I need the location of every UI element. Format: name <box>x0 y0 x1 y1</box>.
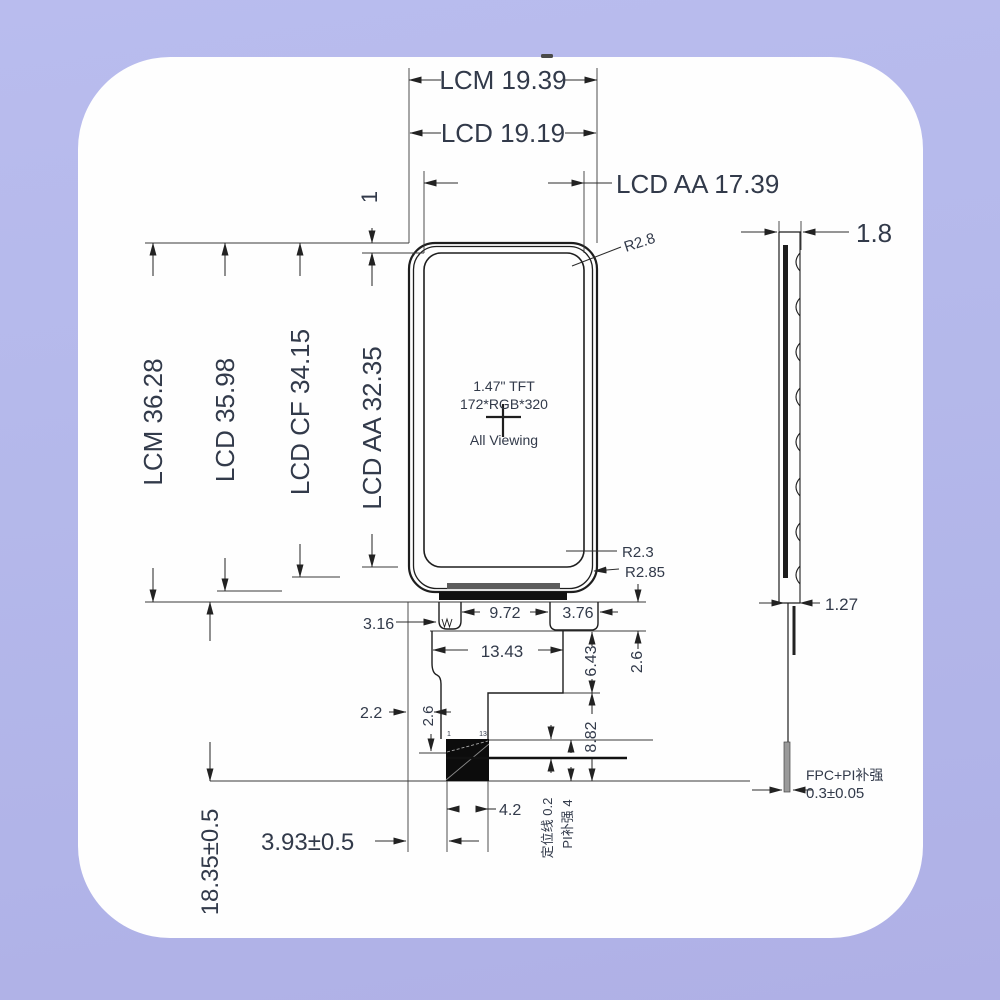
panel-resolution-label: 172*RGB*320 <box>460 396 548 412</box>
dim-lcm-width: LCM 19.39 <box>439 65 566 95</box>
dim-neck-width: 13.43 <box>481 642 524 661</box>
dim-pi-stiffener: PI补强 4 <box>560 799 575 848</box>
dim-right-tab: 3.76 <box>562 605 593 622</box>
bonding-bar-lower <box>439 592 567 600</box>
radius-bottom-inner-label: R2.3 <box>622 544 654 561</box>
dim-fpc-thickness: 0.3±0.05 <box>806 785 864 802</box>
dim-tab-gap: 9.72 <box>489 605 520 622</box>
dim-tab-height: 2.6 <box>629 651 646 673</box>
panel-size-label: 1.47" TFT <box>473 378 535 394</box>
tab-index-mark <box>442 619 452 627</box>
dim-panel-thickness: 1.27 <box>825 595 858 614</box>
dim-lcm-height: LCM 36.28 <box>138 358 168 485</box>
side-view: 1.8 1.27 FPC+PI补强 0.3±0.05 <box>741 218 892 802</box>
front-view-outline <box>409 243 597 600</box>
pi-stiffener-bar <box>784 742 790 792</box>
stray-mark <box>541 54 553 58</box>
dim-right-step: 6.43 <box>583 645 600 676</box>
radius-bottom-outer-label: R2.85 <box>625 564 665 581</box>
side-serration <box>796 253 800 584</box>
panel-labels: 1.47" TFT 172*RGB*320 All Viewing <box>460 378 548 448</box>
lcm-mechanical-drawing: 1.47" TFT 172*RGB*320 All Viewing R2.8 R… <box>0 0 1000 1000</box>
radius-top-label: R2.8 <box>622 230 657 256</box>
dim-total-thickness: 1.8 <box>856 218 892 248</box>
dim-tail-length: 18.35±0.5 <box>197 809 224 916</box>
dim-tail-offset: 3.93±0.5 <box>261 829 354 856</box>
dim-top-gap: 1 <box>357 191 382 203</box>
corner-radius-callouts: R2.8 R2.3 R2.85 <box>566 230 665 581</box>
front-dims-top: LCM 19.39 LCD 19.19 LCD AA 17.39 <box>409 65 779 199</box>
dim-left-step: 2.6 <box>420 706 437 727</box>
glass-stack <box>783 245 788 578</box>
front-dims-left: LCM 36.28 LCD 35.98 LCD CF 34.15 LCD AA … <box>138 191 387 602</box>
dim-connector-width: 4.2 <box>499 802 521 819</box>
pin-13-label: 13 <box>479 731 487 738</box>
dim-tail-height: 8.82 <box>583 721 600 752</box>
dim-lcd-aa-width: LCD AA 17.39 <box>616 169 779 199</box>
pin-1-label: 1 <box>447 731 451 738</box>
dim-lcd-height: LCD 35.98 <box>210 358 240 482</box>
dim-lcd-cf-height: LCD CF 34.15 <box>285 329 315 495</box>
dim-tab-width: 3.16 <box>363 616 394 633</box>
dim-lcd-width: LCD 19.19 <box>441 118 565 148</box>
bonding-bar-upper <box>447 583 560 589</box>
fpc-outline: 1 13 <box>432 602 627 781</box>
fpc-note-label: FPC+PI补强 <box>806 767 883 783</box>
dim-lcd-aa-height: LCD AA 32.35 <box>357 346 387 509</box>
dim-locating-line: 定位线 0.2 <box>540 798 555 859</box>
panel-viewing-label: All Viewing <box>470 432 538 448</box>
dim-edge-offset: 2.2 <box>360 705 382 722</box>
fpc-dims: 3.16 9.72 3.76 13.43 6.43 2.6 2.2 2.6 8.… <box>197 584 646 915</box>
